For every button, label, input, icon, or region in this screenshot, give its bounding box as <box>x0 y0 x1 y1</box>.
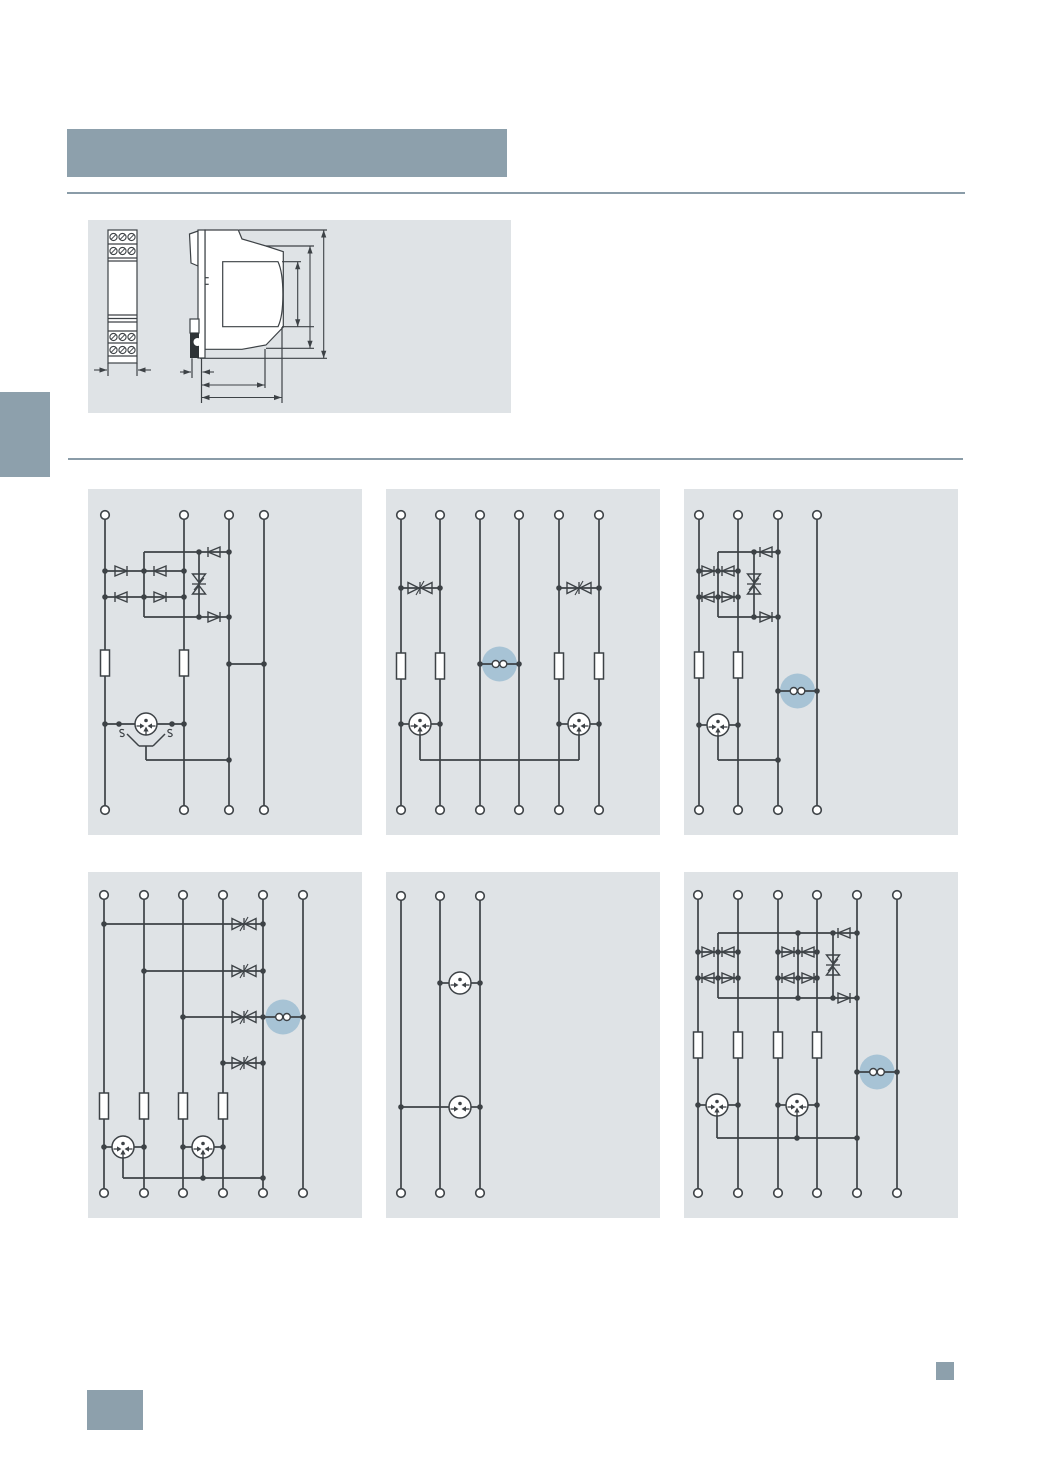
junction-dot <box>220 1144 226 1150</box>
terminal-circle <box>813 806 822 815</box>
terminal-circle <box>259 891 268 900</box>
terminal-circle <box>397 1189 406 1198</box>
terminal-circle <box>101 511 110 520</box>
resistor-icon <box>555 653 564 679</box>
relay-coil-icon <box>409 713 431 735</box>
junction-dot <box>854 995 860 1001</box>
resistor-icon <box>595 653 604 679</box>
relay-contact-icon <box>870 1069 885 1076</box>
catalog-page <box>0 0 1041 1472</box>
diode-icon <box>702 947 714 957</box>
junction-dot <box>775 975 781 981</box>
diode-icon <box>782 947 794 957</box>
connection-diagram-2-panel <box>386 489 660 835</box>
junction-dot <box>398 585 404 591</box>
terminal-circle <box>179 1189 188 1198</box>
resistor-icon <box>734 1032 743 1058</box>
resistor-icon <box>695 652 704 678</box>
junction-dot <box>260 968 266 974</box>
terminal-circle <box>140 1189 149 1198</box>
contact-highlight <box>482 647 517 682</box>
junction-dot <box>715 975 721 981</box>
junction-dot <box>715 568 721 574</box>
junction-dot <box>102 568 108 574</box>
diode-icon <box>722 592 734 602</box>
junction-dot <box>260 1060 266 1066</box>
terminal-circle <box>774 511 783 520</box>
junction-dot <box>226 614 232 620</box>
terminal-circle <box>734 1189 743 1198</box>
manual-actuator-icon <box>120 729 172 746</box>
terminal-circle <box>180 511 189 520</box>
junction-dot <box>196 549 202 555</box>
terminal-circle <box>397 892 406 901</box>
bidirectional-suppressor-icon <box>232 1010 256 1024</box>
terminal-circle <box>813 891 822 900</box>
relay-contact-icon <box>790 688 805 695</box>
terminal-circle <box>140 891 149 900</box>
connection-diagram-2 <box>386 489 660 835</box>
junction-dot <box>854 1069 860 1075</box>
bidirectional-suppressor-icon <box>567 581 591 595</box>
resistor-icon <box>179 1093 188 1119</box>
connection-diagram-5-panel <box>386 872 660 1218</box>
junction-dot <box>180 1144 186 1150</box>
terminal-circle <box>100 891 109 900</box>
junction-dot <box>735 975 741 981</box>
junction-dot <box>300 1014 306 1020</box>
terminal-circle <box>555 806 564 815</box>
junction-dot <box>102 594 108 600</box>
section-end-marker <box>936 1362 954 1380</box>
terminal-circle <box>774 891 783 900</box>
junction-dot <box>775 757 781 763</box>
connection-diagram-6-panel <box>684 872 958 1218</box>
junction-dot <box>398 1104 404 1110</box>
junction-dot <box>437 980 443 986</box>
terminal-circle <box>397 511 406 520</box>
junction-dot <box>169 721 175 727</box>
diode-icon <box>722 973 734 983</box>
junction-dot <box>260 1014 266 1020</box>
terminal-circle <box>219 1189 228 1198</box>
suppressor-diode-icon <box>192 574 206 594</box>
junction-dot <box>695 1102 701 1108</box>
junction-dot <box>181 721 187 727</box>
diode-icon <box>702 566 714 576</box>
contact-highlight <box>266 1000 301 1035</box>
resistor-icon <box>140 1093 149 1119</box>
junction-dot <box>477 980 483 986</box>
section-divider-rule <box>68 458 963 460</box>
resistor-icon <box>180 650 189 676</box>
junction-dot <box>220 1060 226 1066</box>
junction-dot <box>775 1102 781 1108</box>
connection-diagram-3-panel <box>684 489 958 835</box>
connection-diagram-1 <box>88 489 362 835</box>
junction-dot <box>830 930 836 936</box>
junction-dot <box>141 968 147 974</box>
diode-icon <box>722 566 734 576</box>
terminal-circle <box>695 511 704 520</box>
title-bar <box>67 129 507 177</box>
terminal-circle <box>436 1189 445 1198</box>
footer-page-block <box>87 1390 143 1430</box>
junction-dot <box>854 930 860 936</box>
terminal-circle <box>853 1189 862 1198</box>
terminal-circle <box>694 1189 703 1198</box>
dimension-drawing-panel <box>88 220 511 413</box>
junction-dot <box>814 975 820 981</box>
junction-dot <box>260 921 266 927</box>
terminal-circle <box>734 511 743 520</box>
relay-coil-icon <box>786 1094 808 1116</box>
section-side-tab <box>0 392 50 477</box>
terminal-circle <box>476 806 485 815</box>
terminal-circle <box>734 891 743 900</box>
terminal-circle <box>774 1189 783 1198</box>
junction-dot <box>735 1102 741 1108</box>
suppressor-diode-icon <box>826 955 840 975</box>
relay-coil-icon <box>192 1136 214 1158</box>
diode-icon <box>154 592 166 602</box>
terminal-circle <box>694 891 703 900</box>
resistor-icon <box>436 653 445 679</box>
diode-icon <box>722 947 734 957</box>
terminal-circle <box>397 806 406 815</box>
terminal-circle <box>436 511 445 520</box>
connection-diagram-4 <box>88 872 362 1218</box>
junction-dot <box>260 1175 266 1181</box>
junction-dot <box>775 688 781 694</box>
junction-dot <box>695 949 701 955</box>
junction-dot <box>696 722 702 728</box>
junction-dot <box>775 949 781 955</box>
connection-diagram-1-panel <box>88 489 362 835</box>
relay-coil-icon <box>449 972 471 994</box>
terminal-circle <box>436 806 445 815</box>
junction-dot <box>101 1144 107 1150</box>
resistor-icon <box>397 653 406 679</box>
junction-dot <box>141 1144 147 1150</box>
relay-coil-icon <box>707 714 729 736</box>
header-rule <box>67 192 965 194</box>
terminal-circle <box>259 1189 268 1198</box>
junction-dot <box>596 721 602 727</box>
junction-dot <box>715 949 721 955</box>
junction-dot <box>261 661 267 667</box>
junction-dot <box>751 549 757 555</box>
junction-dot <box>735 949 741 955</box>
terminal-circle <box>476 511 485 520</box>
junction-dot <box>226 757 232 763</box>
diode-icon <box>115 566 127 576</box>
junction-dot <box>196 614 202 620</box>
terminal-circle <box>299 891 308 900</box>
junction-dot <box>830 995 836 1001</box>
relay-coil-icon <box>568 713 590 735</box>
terminal-circle <box>595 806 604 815</box>
diode-icon <box>760 612 772 622</box>
diode-icon <box>760 547 772 557</box>
junction-dot <box>775 614 781 620</box>
junction-dot <box>894 1069 900 1075</box>
relay-contact-icon <box>276 1014 291 1021</box>
junction-dot <box>794 1135 800 1141</box>
junction-dot <box>814 1102 820 1108</box>
bidirectional-suppressor-icon <box>232 1056 256 1070</box>
terminal-screws <box>110 333 135 340</box>
terminal-circle <box>179 891 188 900</box>
junction-dot <box>477 661 483 667</box>
suppressor-diode-icon <box>747 574 761 594</box>
junction-dot <box>116 721 122 727</box>
terminal-circle <box>515 806 524 815</box>
junction-dot <box>101 921 107 927</box>
contact-highlight <box>860 1055 895 1090</box>
junction-dot <box>556 585 562 591</box>
connection-diagram-4-panel <box>88 872 362 1218</box>
bidirectional-suppressor-icon <box>408 581 432 595</box>
bidirectional-suppressor-icon <box>232 964 256 978</box>
junction-dot <box>735 722 741 728</box>
terminal-circle <box>260 511 269 520</box>
junction-dot <box>181 568 187 574</box>
diode-icon <box>702 973 714 983</box>
diode-icon <box>208 612 220 622</box>
terminal-circle <box>180 806 189 815</box>
terminal-circle <box>813 511 822 520</box>
terminal-circle <box>219 891 228 900</box>
junction-dot <box>814 688 820 694</box>
terminal-circle <box>893 891 902 900</box>
relay-coil-icon <box>706 1094 728 1116</box>
contact-highlight <box>780 674 815 709</box>
terminal-circle <box>774 806 783 815</box>
terminal-circle <box>476 1189 485 1198</box>
diode-icon <box>702 592 714 602</box>
junction-dot <box>854 1135 860 1141</box>
connection-diagram-6 <box>684 872 958 1218</box>
diode-icon <box>802 947 814 957</box>
resistor-icon <box>813 1032 822 1058</box>
terminal-circle <box>893 1189 902 1198</box>
junction-dot <box>795 930 801 936</box>
resistor-icon <box>100 1093 109 1119</box>
terminal-circle <box>225 806 234 815</box>
terminal-circle <box>260 806 269 815</box>
diode-icon <box>782 973 794 983</box>
junction-dot <box>814 949 820 955</box>
diode-icon <box>115 592 127 602</box>
relay-coil-icon <box>449 1096 471 1118</box>
junction-dot <box>226 661 232 667</box>
terminal-circle <box>225 511 234 520</box>
diode-icon <box>802 973 814 983</box>
junction-dot <box>795 975 801 981</box>
terminal-circle <box>595 511 604 520</box>
junction-dot <box>181 594 187 600</box>
resistor-icon <box>734 652 743 678</box>
junction-dot <box>795 949 801 955</box>
terminal-circle <box>100 1189 109 1198</box>
junction-dot <box>751 614 757 620</box>
terminal-circle <box>436 892 445 901</box>
diode-icon <box>838 993 850 1003</box>
junction-dot <box>226 549 232 555</box>
terminal-screws <box>110 346 135 353</box>
relay-coil-icon <box>135 713 157 735</box>
terminal-circle <box>515 511 524 520</box>
terminal-circle <box>476 892 485 901</box>
resistor-icon <box>694 1032 703 1058</box>
junction-dot <box>735 568 741 574</box>
diode-icon <box>208 547 220 557</box>
junction-dot <box>715 594 721 600</box>
bidirectional-suppressor-icon <box>232 917 256 931</box>
terminal-circle <box>853 891 862 900</box>
junction-dot <box>516 661 522 667</box>
terminal-circle <box>813 1189 822 1198</box>
terminal-circle <box>695 806 704 815</box>
junction-dot <box>200 1175 206 1181</box>
junction-dot <box>141 568 147 574</box>
terminal-circle <box>734 806 743 815</box>
junction-dot <box>477 1104 483 1110</box>
relay-coil-icon <box>112 1136 134 1158</box>
connection-diagram-3 <box>684 489 958 835</box>
junction-dot <box>596 585 602 591</box>
junction-dot <box>437 585 443 591</box>
junction-dot <box>696 568 702 574</box>
junction-dot <box>695 975 701 981</box>
terminal-circle <box>555 511 564 520</box>
connection-diagram-5 <box>386 872 660 1218</box>
junction-dot <box>735 594 741 600</box>
resistor-icon <box>219 1093 228 1119</box>
relay-contact-icon <box>492 661 507 668</box>
terminal-circle <box>299 1189 308 1198</box>
diode-icon <box>838 928 850 938</box>
junction-dot <box>102 721 108 727</box>
terminal-screws <box>110 247 135 254</box>
terminal-circle <box>101 806 110 815</box>
junction-dot <box>141 594 147 600</box>
dimension-drawing <box>88 220 511 413</box>
junction-dot <box>556 721 562 727</box>
junction-dot <box>795 995 801 1001</box>
diode-icon <box>154 566 166 576</box>
terminal-screws <box>110 233 135 240</box>
resistor-icon <box>101 650 110 676</box>
junction-dot <box>180 1014 186 1020</box>
junction-dot <box>775 549 781 555</box>
resistor-icon <box>774 1032 783 1058</box>
junction-dot <box>398 721 404 727</box>
junction-dot <box>696 594 702 600</box>
junction-dot <box>437 721 443 727</box>
